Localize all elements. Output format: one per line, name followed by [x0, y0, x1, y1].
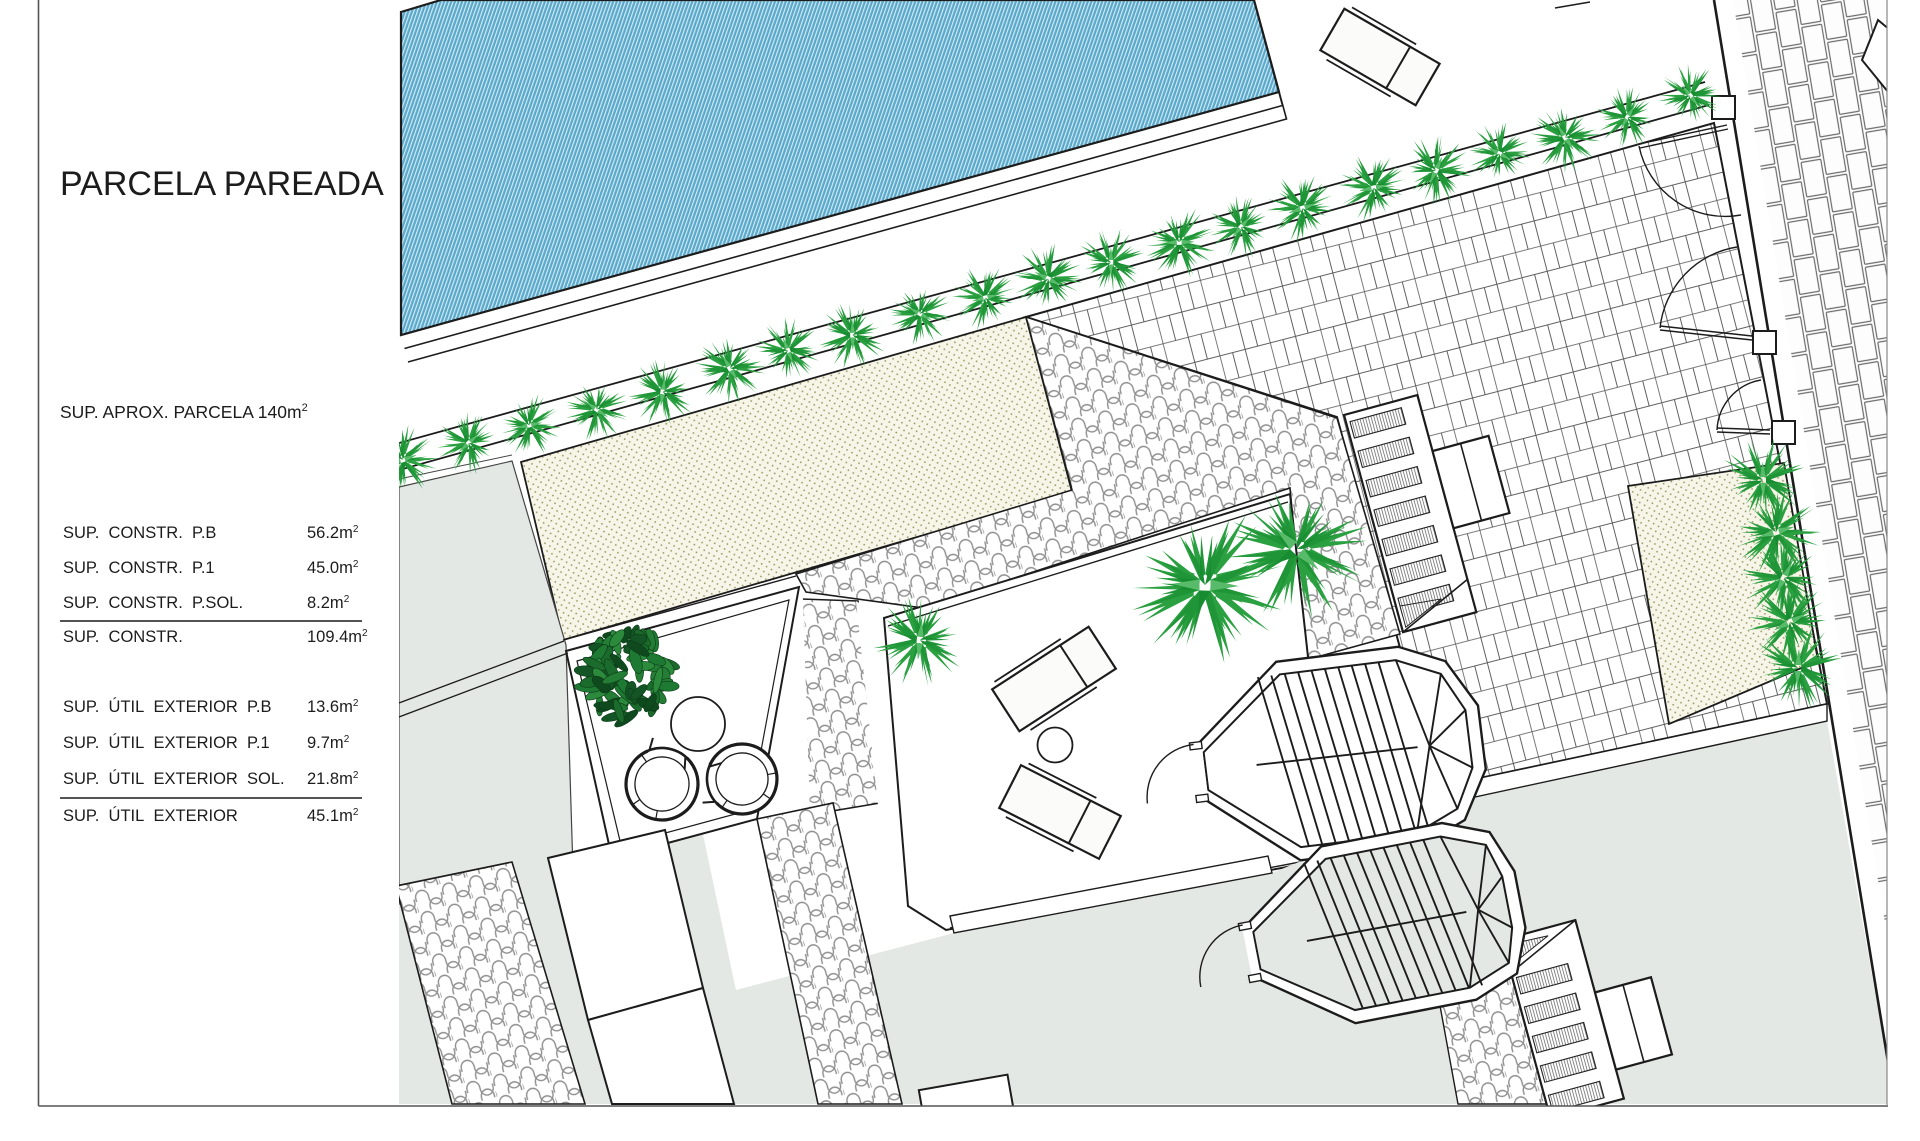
svg-text:45.1m2: 45.1m2	[307, 807, 359, 825]
svg-text:SUP. ÚTIL EXTERIOR: SUP. ÚTIL EXTERIOR	[63, 806, 238, 825]
svg-text:109.4m2: 109.4m2	[307, 628, 368, 646]
svg-text:SUP. APROX. PARCELA 140m2: SUP. APROX. PARCELA 140m2	[60, 402, 308, 422]
svg-text:PARCELA PAREADA: PARCELA PAREADA	[60, 165, 384, 203]
svg-text:SUP. CONSTR. P.1: SUP. CONSTR. P.1	[63, 559, 215, 577]
svg-text:SUP. ÚTIL EXTERIOR SOL.: SUP. ÚTIL EXTERIOR SOL.	[63, 769, 285, 788]
svg-text:SUP. CONSTR.: SUP. CONSTR.	[63, 628, 183, 646]
svg-text:SUP. CONSTR. P.SOL.: SUP. CONSTR. P.SOL.	[63, 594, 243, 612]
svg-text:56.2m2: 56.2m2	[307, 524, 359, 542]
svg-text:45.0m2: 45.0m2	[307, 559, 359, 577]
svg-text:8.2m2: 8.2m2	[307, 594, 350, 612]
svg-text:9.7m2: 9.7m2	[307, 734, 350, 752]
svg-text:SUP. ÚTIL EXTERIOR P.1: SUP. ÚTIL EXTERIOR P.1	[63, 733, 270, 752]
svg-text:SUP. CONSTR. P.B: SUP. CONSTR. P.B	[63, 524, 216, 542]
svg-text:21.8m2: 21.8m2	[307, 770, 359, 788]
svg-text:SUP. ÚTIL EXTERIOR P.B: SUP. ÚTIL EXTERIOR P.B	[63, 697, 271, 716]
svg-text:13.6m2: 13.6m2	[307, 698, 359, 716]
